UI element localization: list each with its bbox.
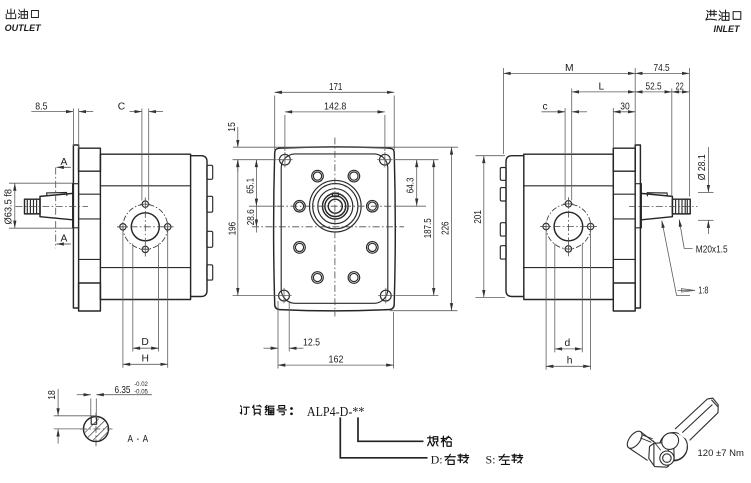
svg-text:L: L [599,81,605,92]
svg-text:120 ±7 Nm: 120 ±7 Nm [698,448,744,459]
svg-text:A: A [61,234,68,245]
svg-text:S:: S: [486,453,496,467]
svg-text:h: h [567,355,573,366]
svg-text:H: H [142,353,149,364]
svg-text:226: 226 [441,221,452,235]
svg-text:52.5: 52.5 [646,81,662,92]
svg-text:142.8: 142.8 [324,101,347,112]
svg-text:-0.02: -0.02 [134,382,148,388]
svg-text:c: c [543,101,548,112]
svg-text:8.5: 8.5 [35,101,47,112]
svg-text:INLET: INLET [714,24,742,34]
svg-text:1:8: 1:8 [698,286,708,297]
svg-text:187.5: 187.5 [423,218,434,238]
svg-text:M: M [565,63,574,74]
svg-text:D: D [141,337,148,348]
svg-text:28.6: 28.6 [246,209,257,225]
svg-text:171: 171 [329,82,343,93]
svg-text:-0.05: -0.05 [134,389,148,395]
svg-text:12.5: 12.5 [303,338,320,349]
svg-text:Ø63.5 f8: Ø63.5 f8 [4,189,15,225]
svg-text:Ø 28.1: Ø 28.1 [697,154,708,180]
svg-text:OUTLET: OUTLET [5,23,42,33]
svg-text:d: d [565,338,571,349]
svg-text:65.1: 65.1 [246,178,257,194]
svg-text:C: C [118,101,126,112]
svg-text:A - A: A - A [128,434,150,445]
svg-text:A: A [61,157,68,168]
svg-text:22: 22 [676,81,684,92]
svg-text:30: 30 [620,101,630,112]
svg-text:ALP4-D-**: ALP4-D-** [307,404,365,419]
svg-text:64.3: 64.3 [406,177,417,193]
svg-text:18: 18 [47,390,58,400]
svg-text:196: 196 [227,222,238,236]
svg-text:D:: D: [431,453,443,467]
svg-text:201: 201 [473,210,484,224]
svg-text:162: 162 [329,354,344,365]
svg-text:M20x1.5: M20x1.5 [696,244,728,255]
svg-text:15: 15 [227,122,238,132]
svg-text:6.35: 6.35 [115,385,131,396]
svg-text:74.5: 74.5 [654,63,670,74]
